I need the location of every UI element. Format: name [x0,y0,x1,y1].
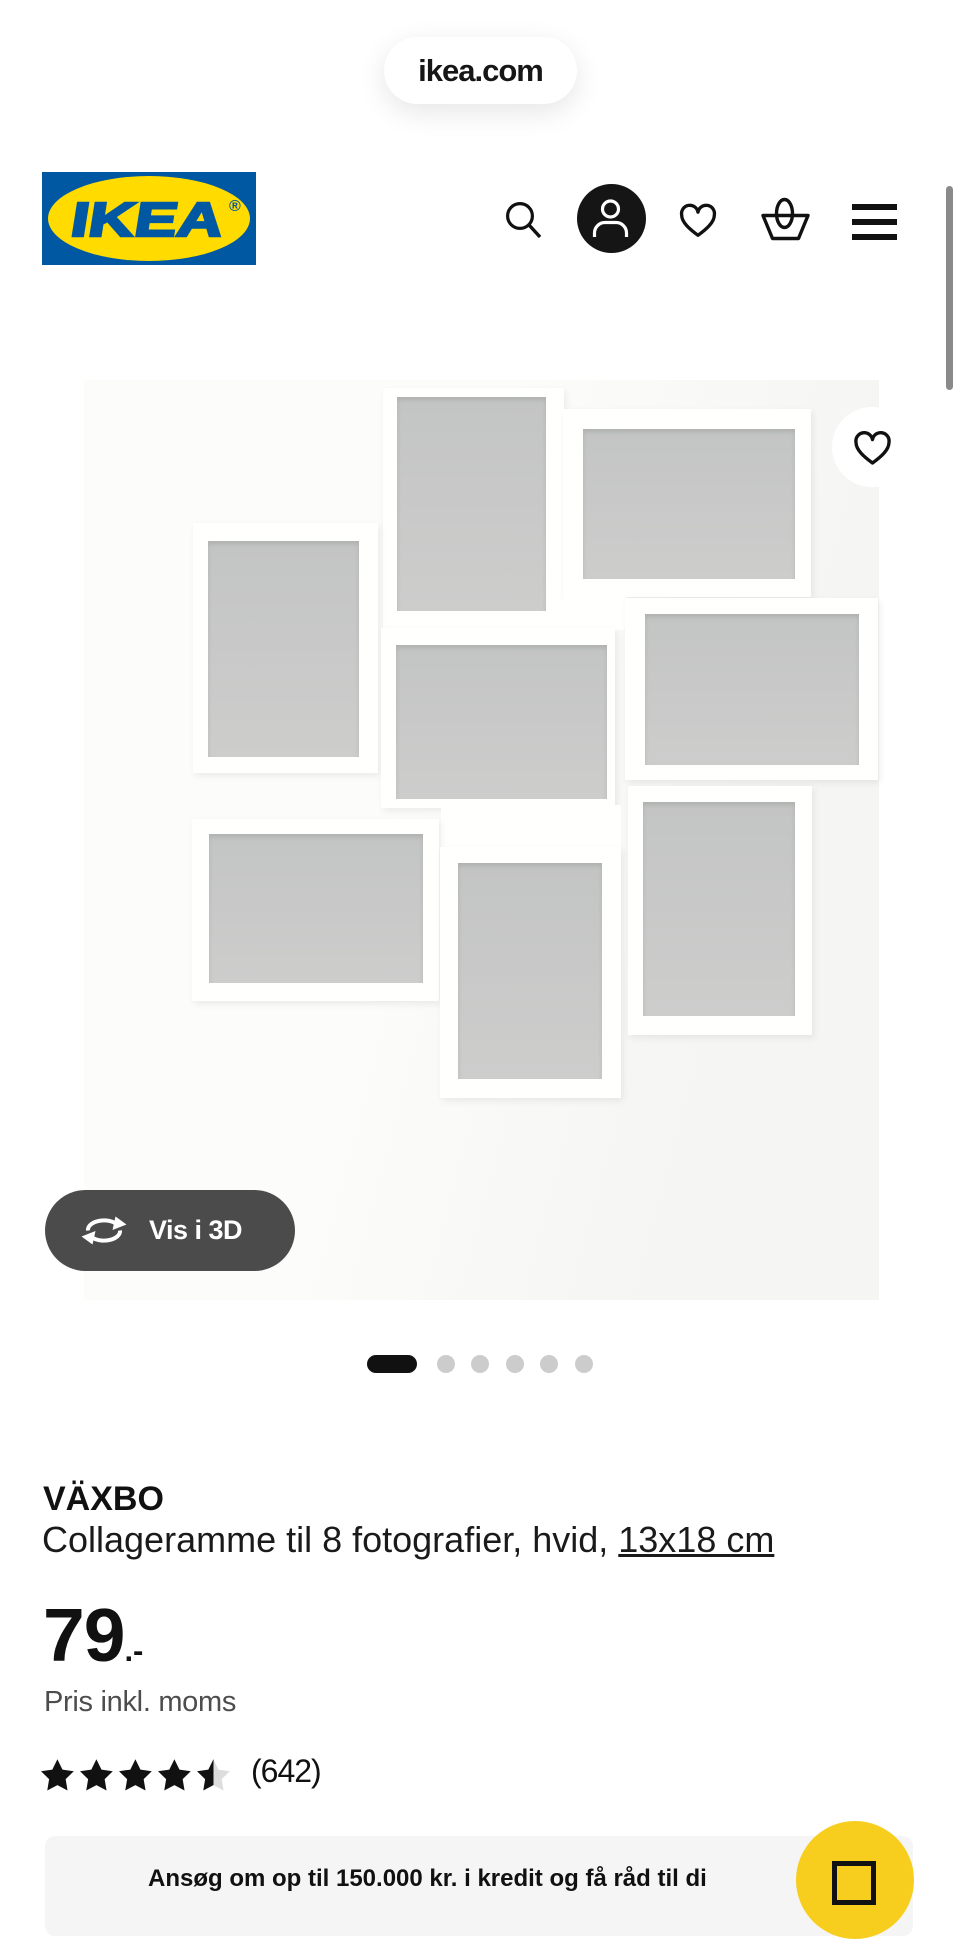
svg-text:IKEA: IKEA [67,193,227,247]
svg-text:®: ® [229,198,241,215]
